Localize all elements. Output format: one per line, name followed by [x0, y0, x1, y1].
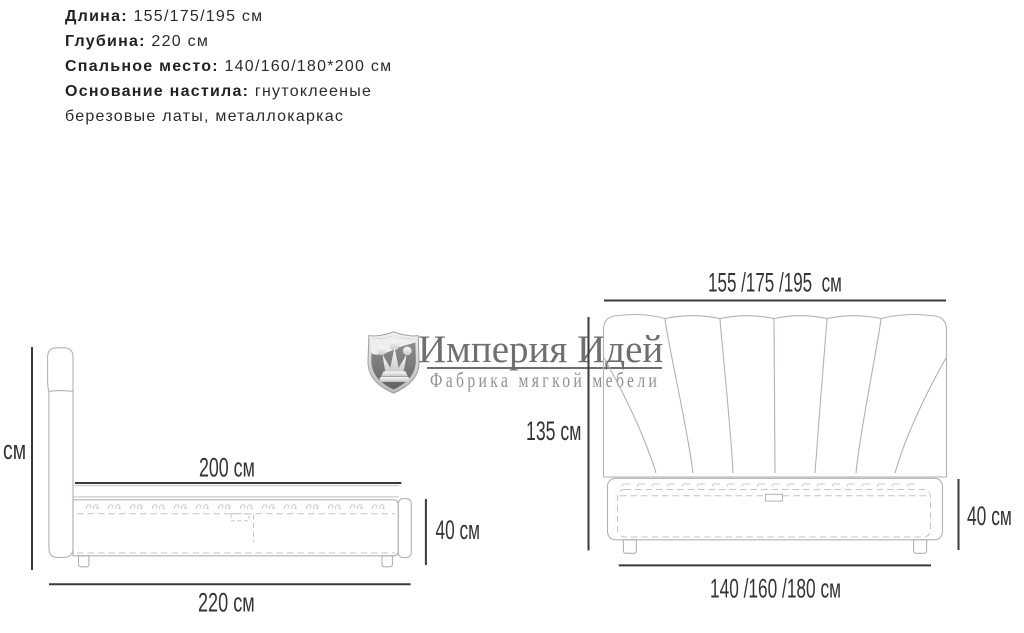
- svg-text:220 см: 220 см: [198, 587, 255, 618]
- svg-text:40 см: 40 см: [967, 500, 1012, 531]
- svg-text:140 /160 /180 см: 140 /160 /180 см: [710, 572, 841, 603]
- svg-text:200 см: 200 см: [199, 452, 255, 483]
- svg-text:135 см: 135 см: [526, 415, 581, 446]
- svg-text:40 см: 40 см: [436, 514, 481, 545]
- svg-text:см: см: [3, 435, 26, 465]
- svg-text:155 /175 /195 см: 155 /175 /195 см: [708, 268, 842, 298]
